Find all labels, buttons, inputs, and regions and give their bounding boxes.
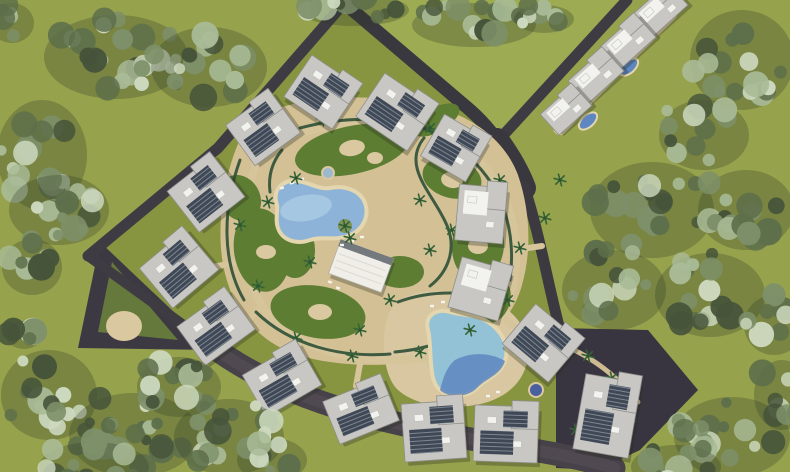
sand-circle-plaza xyxy=(106,311,142,341)
play-area-sand xyxy=(256,245,276,259)
apartment-building xyxy=(454,178,511,248)
spa-pool xyxy=(529,383,543,397)
sun-lounger xyxy=(360,236,364,238)
apartment-building xyxy=(473,399,542,467)
play-area-sand xyxy=(367,152,383,164)
sun-lounger xyxy=(340,244,344,246)
sun-lounger xyxy=(441,301,445,303)
play-area-sand xyxy=(308,304,332,320)
apartment-building xyxy=(401,394,471,466)
sun-lounger xyxy=(486,395,490,397)
sun-lounger xyxy=(496,391,500,393)
spa-pool xyxy=(322,167,334,179)
aerial-site-plan xyxy=(0,0,790,472)
masterplan-render xyxy=(0,0,790,472)
sun-lounger xyxy=(430,305,434,307)
